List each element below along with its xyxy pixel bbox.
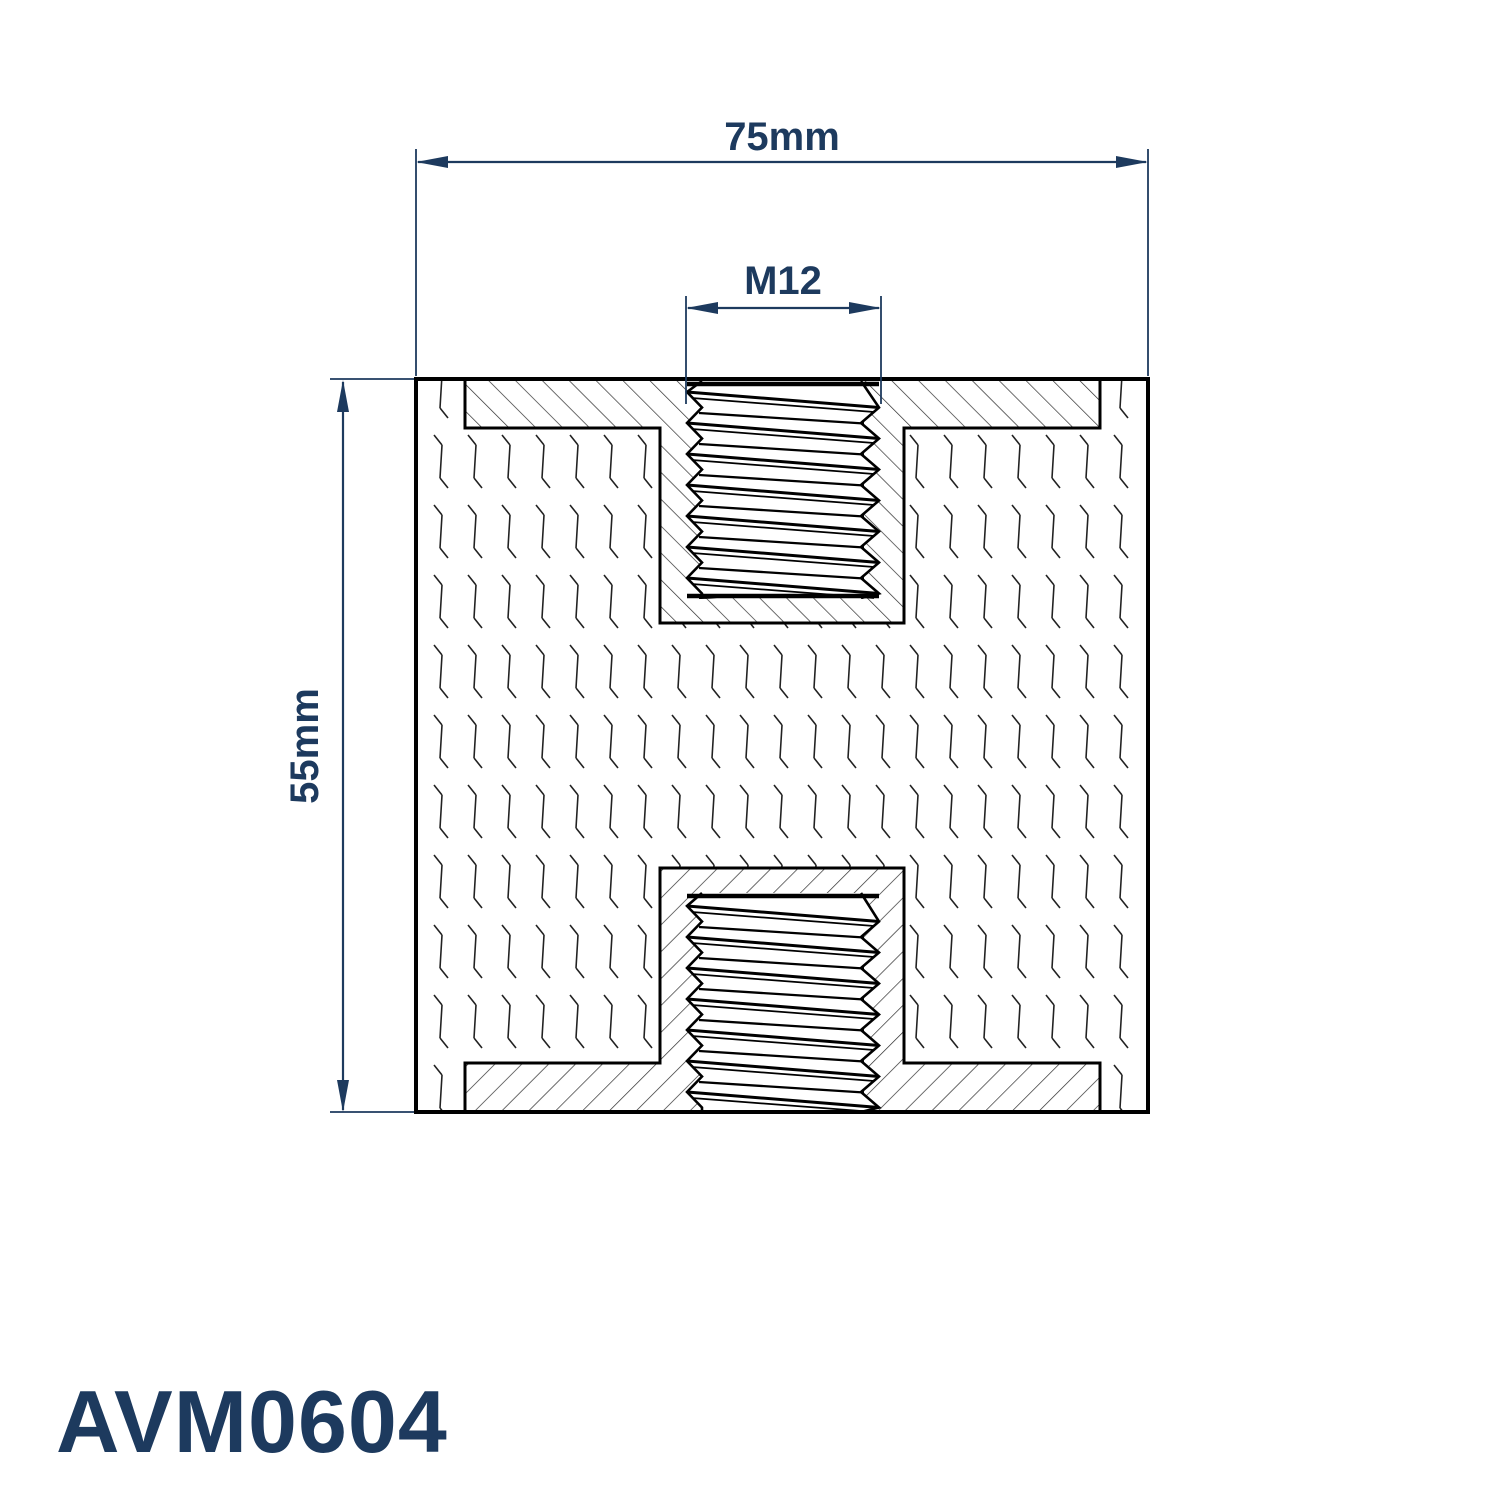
arrowhead-down	[337, 1080, 349, 1112]
dimension-width: 75mm	[416, 115, 1148, 376]
arrowhead-left	[416, 156, 448, 168]
dimension-height: 55mm	[283, 379, 414, 1112]
technical-drawing: 75mm M12 55mm AVM0604	[0, 0, 1500, 1500]
arrowhead-right	[1116, 156, 1148, 168]
width-dimension-label: 75mm	[724, 115, 840, 159]
arrowhead-up	[337, 380, 349, 412]
thread-line	[699, 1113, 864, 1124]
bottom-thread-bore	[687, 893, 879, 1124]
arrowhead-left	[686, 302, 718, 314]
part-number: AVM0604	[56, 1372, 448, 1471]
drawing-canvas: 75mm M12 55mm AVM0604	[0, 0, 1500, 1500]
arrowhead-right	[849, 302, 881, 314]
height-dimension-label: 55mm	[283, 688, 327, 804]
thread-dimension-label: M12	[744, 259, 822, 303]
top-thread-bore	[687, 381, 879, 610]
